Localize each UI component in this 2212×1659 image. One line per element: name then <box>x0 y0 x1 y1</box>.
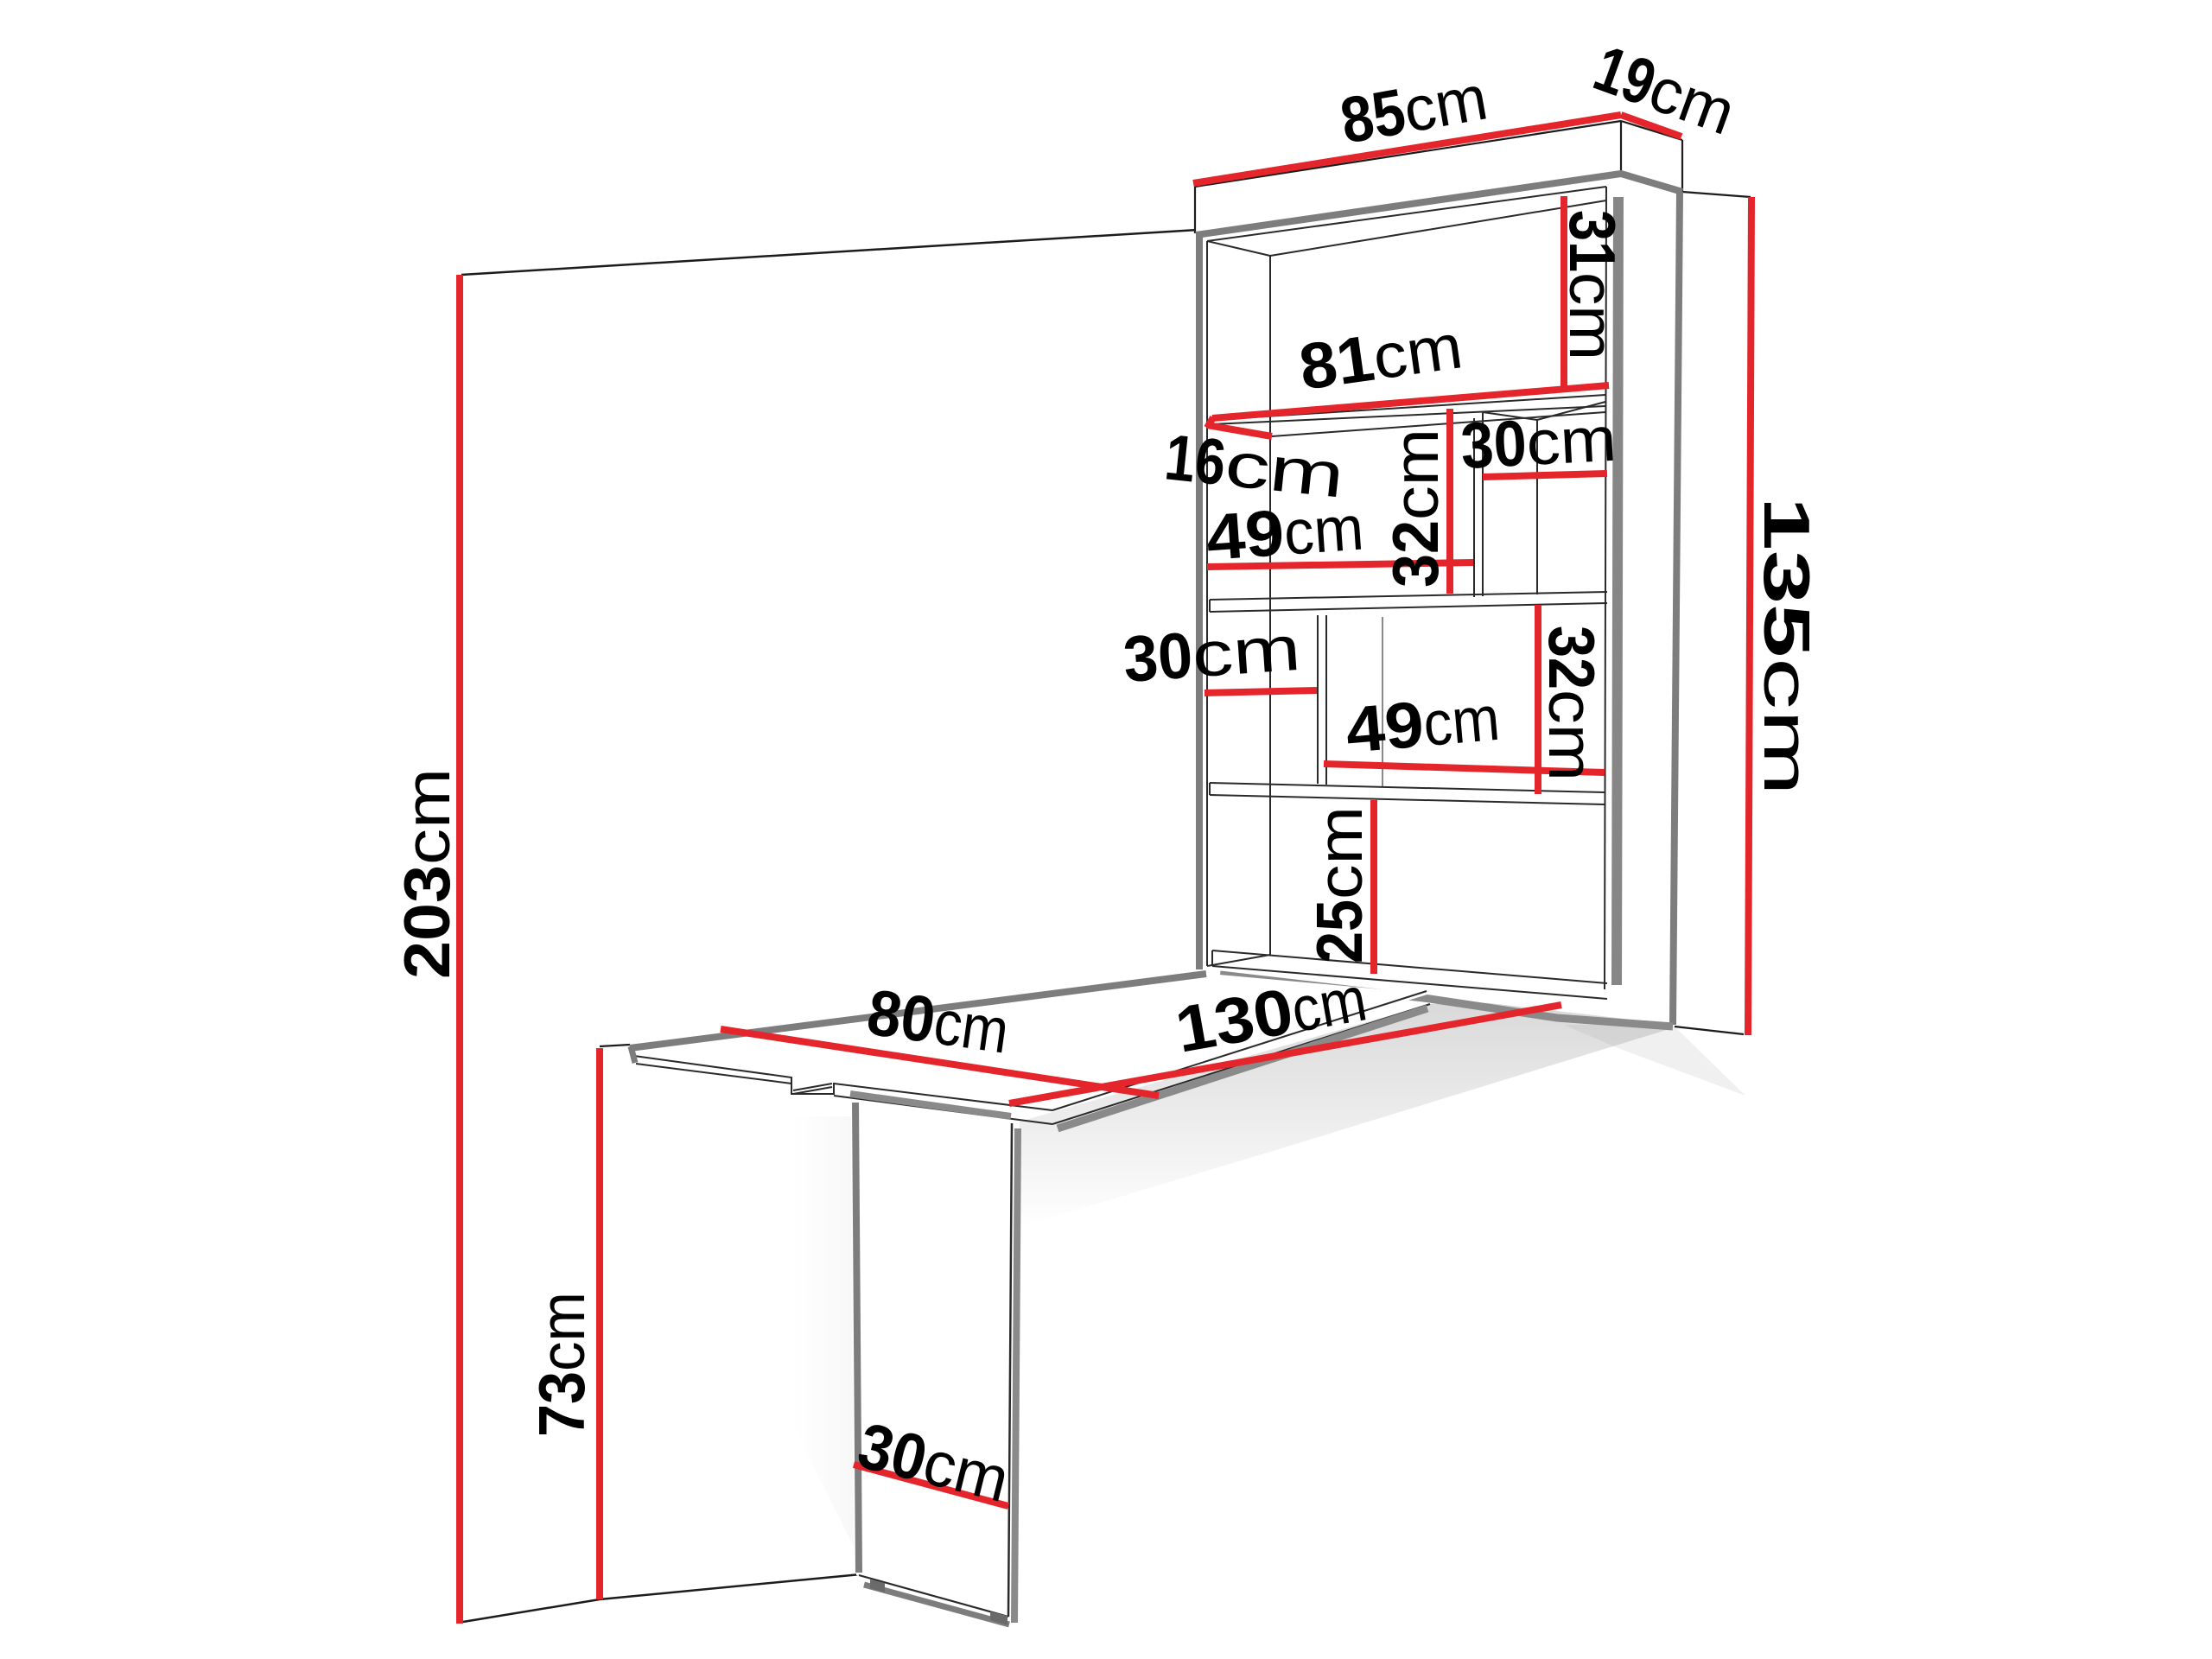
svg-text:30cm: 30cm <box>1121 611 1302 696</box>
svg-text:32cm: 32cm <box>1379 429 1452 588</box>
svg-text:32cm: 32cm <box>1535 626 1608 781</box>
svg-text:135cm: 135cm <box>1751 497 1823 796</box>
svg-text:73cm: 73cm <box>525 1292 598 1437</box>
svg-text:203cm: 203cm <box>391 768 463 979</box>
svg-text:49cm: 49cm <box>1343 681 1503 766</box>
svg-text:49cm: 49cm <box>1204 490 1365 573</box>
svg-text:30cm: 30cm <box>1459 402 1618 482</box>
svg-text:25cm: 25cm <box>1303 806 1376 963</box>
svg-text:31cm: 31cm <box>1556 210 1629 360</box>
